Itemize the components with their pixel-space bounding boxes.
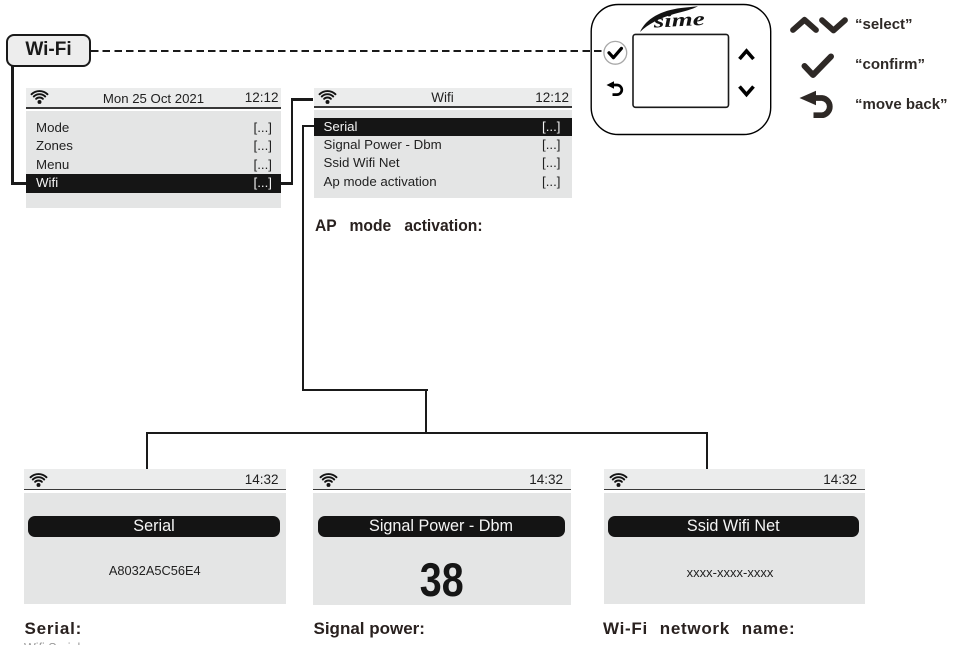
svg-text:sime: sime	[652, 9, 706, 33]
